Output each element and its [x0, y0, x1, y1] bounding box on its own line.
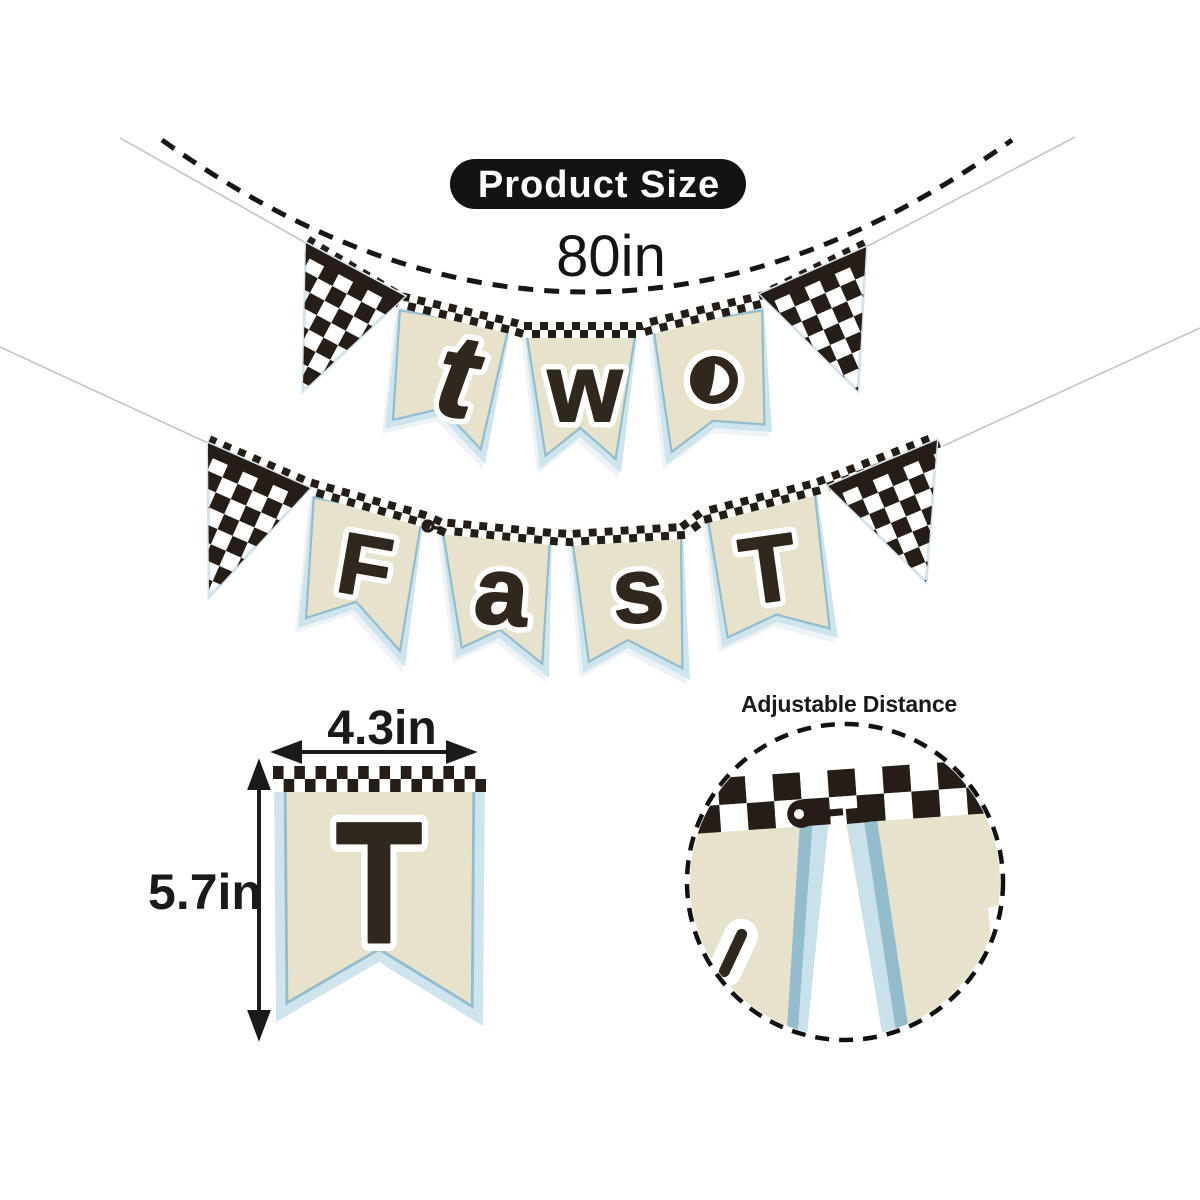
svg-text:w: w — [547, 335, 623, 442]
svg-text:s: s — [609, 538, 667, 643]
svg-text:Product Size: Product Size — [478, 164, 720, 206]
svg-text:5.7in: 5.7in — [148, 864, 262, 920]
svg-text:4.3in: 4.3in — [327, 702, 436, 755]
svg-text:80in: 80in — [556, 224, 666, 289]
svg-text:Adjustable Distance: Adjustable Distance — [741, 691, 957, 717]
svg-text:a: a — [471, 536, 534, 647]
svg-text:T: T — [336, 788, 422, 979]
